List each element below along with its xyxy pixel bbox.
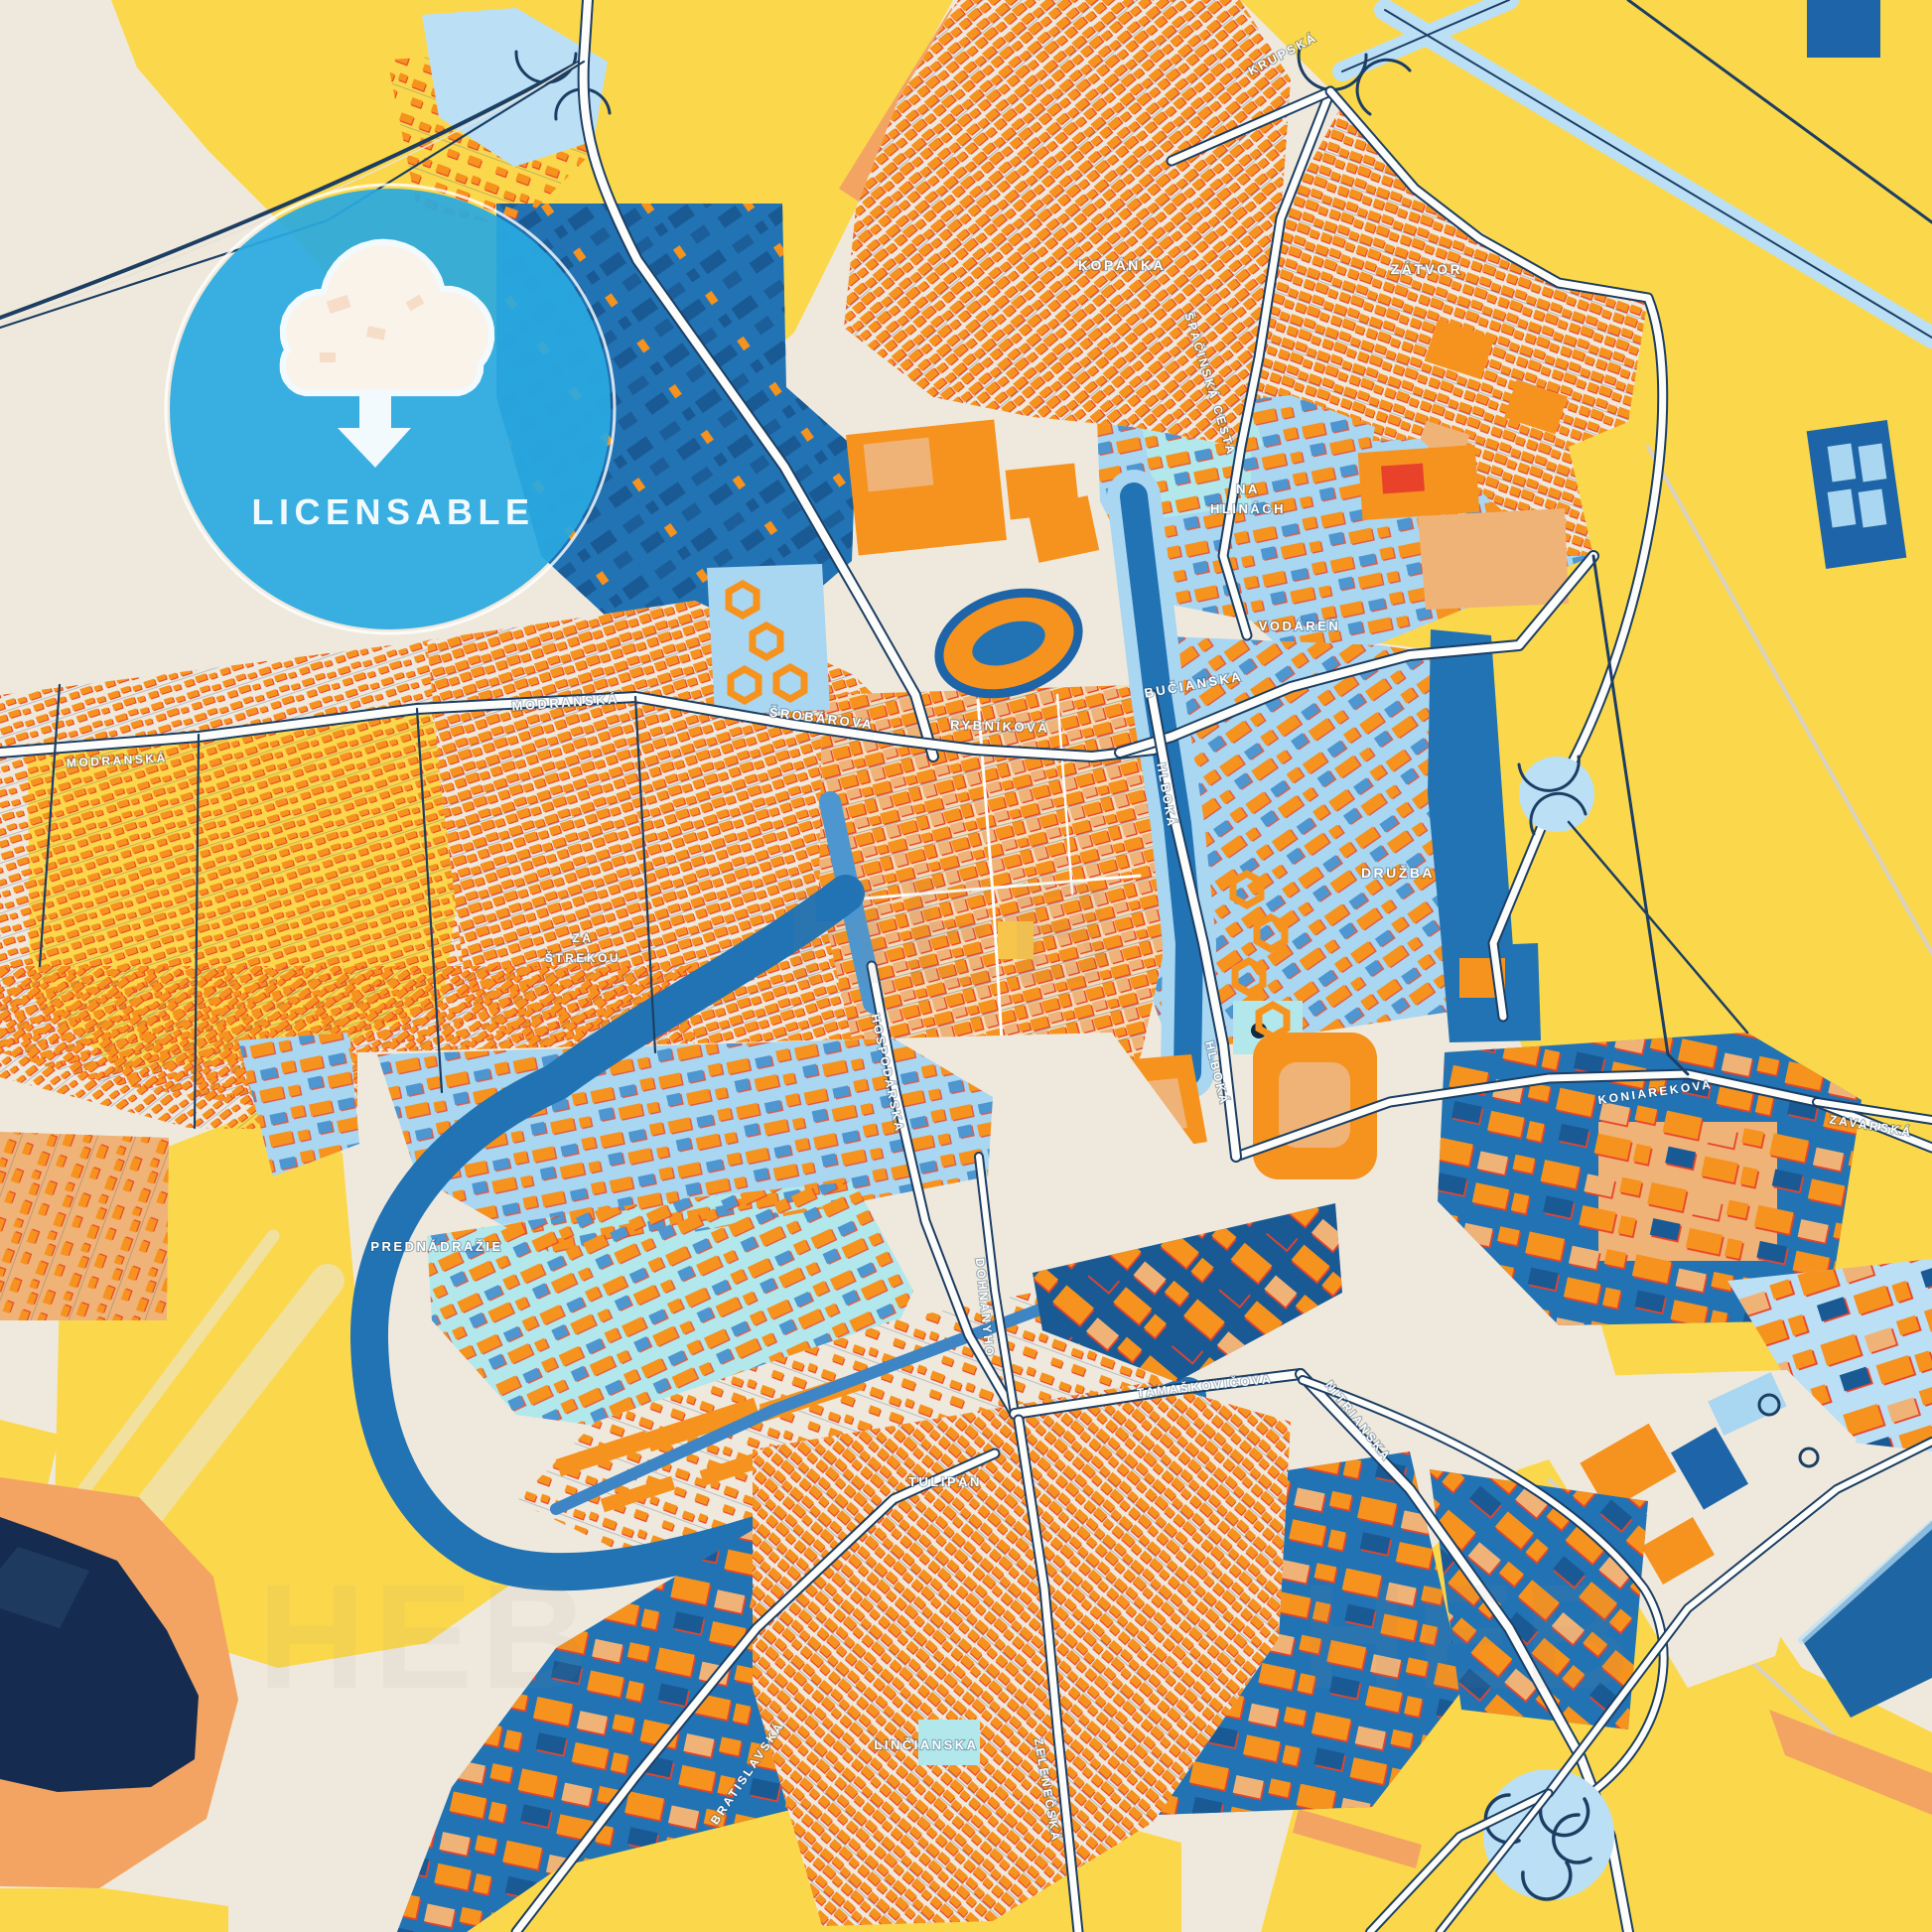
- svg-text:ZA: ZA: [573, 931, 594, 945]
- svg-text:TULIPÁN: TULIPÁN: [908, 1474, 982, 1489]
- svg-text:LINČIANSKA: LINČIANSKA: [874, 1737, 978, 1752]
- svg-text:PREDNÁDRAŽIE: PREDNÁDRAŽIE: [370, 1239, 502, 1254]
- svg-text:KOPÁNKA: KOPÁNKA: [1078, 257, 1166, 273]
- svg-text:HEB: HEB: [784, 848, 1123, 1015]
- svg-text:LICENSABLE: LICENSABLE: [251, 491, 534, 532]
- svg-text:DRUŽBA: DRUŽBA: [1361, 864, 1435, 881]
- svg-text:NA: NA: [1236, 482, 1260, 496]
- svg-text:HEB: HEB: [1301, 1553, 1639, 1720]
- svg-text:HEB: HEB: [258, 1553, 597, 1720]
- svg-text:VODÁREŇ: VODÁREŇ: [1259, 619, 1341, 633]
- svg-text:HLINÁCH: HLINÁCH: [1210, 501, 1286, 516]
- svg-text:ŠTREKOU: ŠTREKOU: [545, 950, 621, 965]
- svg-text:ZÁTVOR: ZÁTVOR: [1391, 261, 1463, 277]
